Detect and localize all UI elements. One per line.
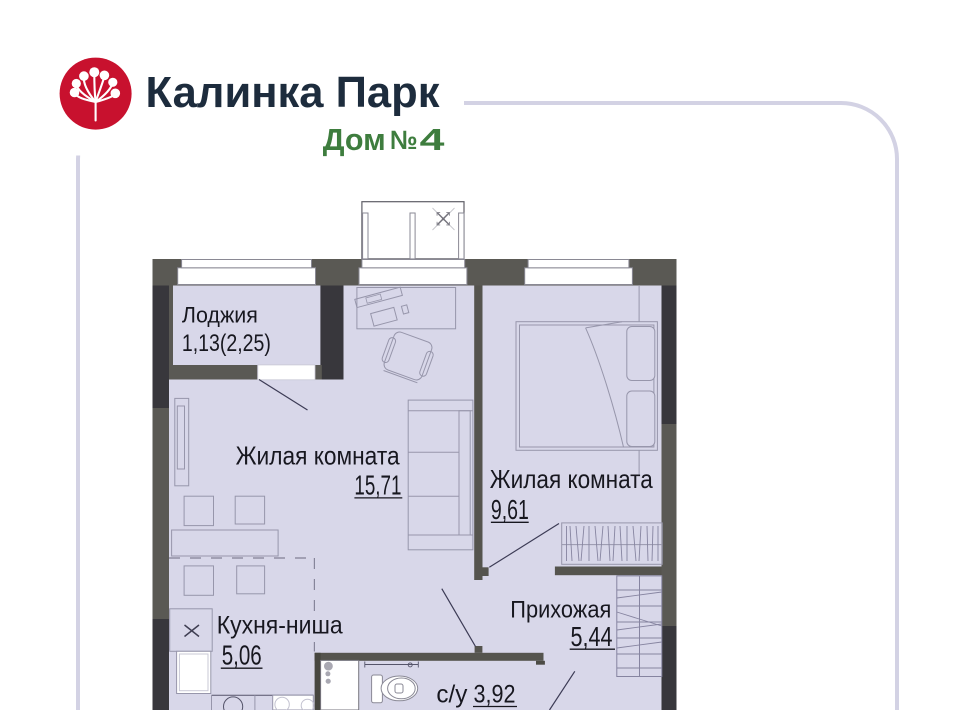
svg-text:1,13(2,25): 1,13(2,25): [182, 330, 271, 357]
svg-text:15,71: 15,71: [354, 470, 401, 501]
svg-text:Калинка Парк: Калинка Парк: [146, 68, 441, 117]
svg-text:4: 4: [420, 123, 445, 157]
svg-text:№: №: [390, 125, 418, 155]
svg-text:Лоджия: Лоджия: [182, 303, 258, 328]
svg-text:Прихожая: Прихожая: [510, 597, 611, 624]
svg-text:Дом: Дом: [323, 123, 386, 157]
svg-text:с/у: с/у: [436, 681, 467, 709]
svg-text:5,44: 5,44: [571, 621, 613, 652]
svg-text:3,92: 3,92: [474, 681, 516, 709]
svg-text:9,61: 9,61: [491, 494, 529, 525]
svg-text:Жилая комната: Жилая комната: [236, 440, 400, 470]
svg-text:5,06: 5,06: [222, 640, 262, 671]
svg-text:Жилая комната: Жилая комната: [490, 464, 653, 494]
svg-text:Кухня-ниша: Кухня-ниша: [217, 612, 343, 640]
